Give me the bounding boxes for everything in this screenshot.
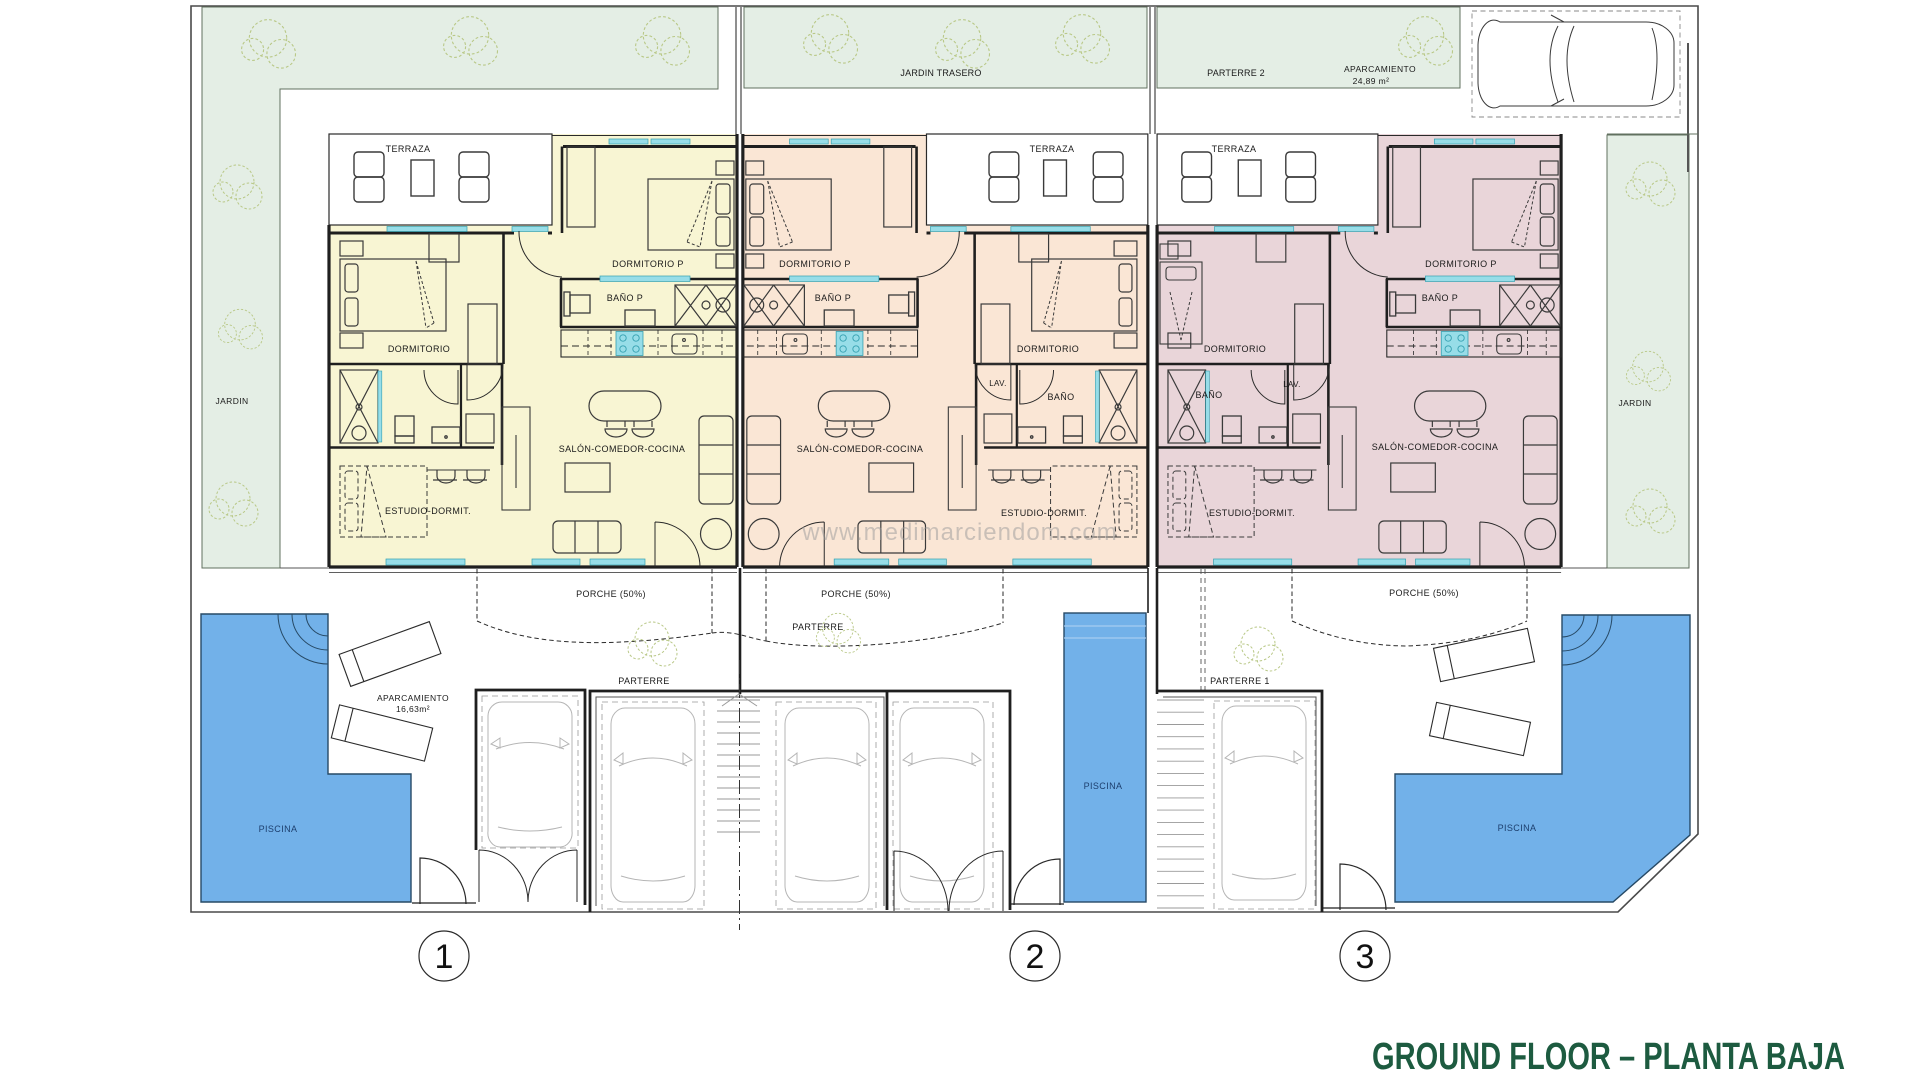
svg-text:TERRAZA: TERRAZA <box>1030 144 1075 154</box>
svg-text:SALÓN-COMEDOR-COCINA: SALÓN-COMEDOR-COCINA <box>559 444 686 454</box>
svg-text:PARTERRE 1: PARTERRE 1 <box>1210 676 1270 686</box>
svg-text:SALÓN-COMEDOR-COCINA: SALÓN-COMEDOR-COCINA <box>797 444 924 454</box>
svg-text:www.medimarciendom.com: www.medimarciendom.com <box>801 519 1117 546</box>
svg-text:16,63m²: 16,63m² <box>396 704 430 714</box>
svg-text:PARTERRE: PARTERRE <box>618 676 669 686</box>
svg-text:PORCHE (50%): PORCHE (50%) <box>821 589 891 599</box>
svg-text:ESTUDIO-DORMIT.: ESTUDIO-DORMIT. <box>385 506 471 516</box>
svg-text:DORMITORIO: DORMITORIO <box>1204 344 1266 354</box>
svg-text:ESTUDIO-DORMIT.: ESTUDIO-DORMIT. <box>1001 508 1087 518</box>
svg-text:BAÑO P: BAÑO P <box>607 293 643 303</box>
svg-text:24,89 m²: 24,89 m² <box>1353 76 1390 86</box>
svg-text:PORCHE (50%): PORCHE (50%) <box>576 589 646 599</box>
svg-text:ESTUDIO-DORMIT.: ESTUDIO-DORMIT. <box>1209 508 1295 518</box>
svg-text:1: 1 <box>435 938 454 976</box>
svg-text:DORMITORIO: DORMITORIO <box>1017 344 1079 354</box>
svg-text:DORMITORIO P: DORMITORIO P <box>1425 259 1497 269</box>
svg-text:TERRAZA: TERRAZA <box>1212 144 1257 154</box>
svg-text:DORMITORIO P: DORMITORIO P <box>779 259 851 269</box>
svg-text:TERRAZA: TERRAZA <box>386 144 431 154</box>
svg-text:PISCINA: PISCINA <box>1084 781 1123 791</box>
svg-text:2: 2 <box>1026 938 1045 976</box>
svg-text:BAÑO P: BAÑO P <box>1422 293 1458 303</box>
svg-text:APARCAMIENTO: APARCAMIENTO <box>1344 64 1416 74</box>
svg-text:JARDIN TRASERO: JARDIN TRASERO <box>900 68 981 78</box>
svg-text:BAÑO P: BAÑO P <box>815 293 851 303</box>
svg-text:LAV.: LAV. <box>1283 380 1301 389</box>
svg-text:BAÑO: BAÑO <box>1195 390 1222 400</box>
svg-text:PARTERRE 2: PARTERRE 2 <box>1207 68 1265 78</box>
svg-text:JARDIN: JARDIN <box>215 396 248 406</box>
svg-text:PISCINA: PISCINA <box>259 824 298 834</box>
svg-text:GROUND FLOOR – PLANTA BAJA: GROUND FLOOR – PLANTA BAJA <box>1372 1036 1845 1078</box>
svg-text:BAÑO: BAÑO <box>1047 392 1074 402</box>
svg-text:JARDIN: JARDIN <box>1618 398 1651 408</box>
svg-text:APARCAMIENTO: APARCAMIENTO <box>377 693 449 703</box>
svg-text:PISCINA: PISCINA <box>1498 823 1537 833</box>
svg-text:SALÓN-COMEDOR-COCINA: SALÓN-COMEDOR-COCINA <box>1372 442 1499 452</box>
svg-text:PORCHE (50%): PORCHE (50%) <box>1389 588 1459 598</box>
svg-text:DORMITORIO: DORMITORIO <box>388 344 450 354</box>
svg-text:3: 3 <box>1356 938 1375 976</box>
svg-text:PARTERRE: PARTERRE <box>792 622 843 632</box>
svg-text:DORMITORIO P: DORMITORIO P <box>612 259 684 269</box>
svg-text:LAV.: LAV. <box>989 379 1007 388</box>
